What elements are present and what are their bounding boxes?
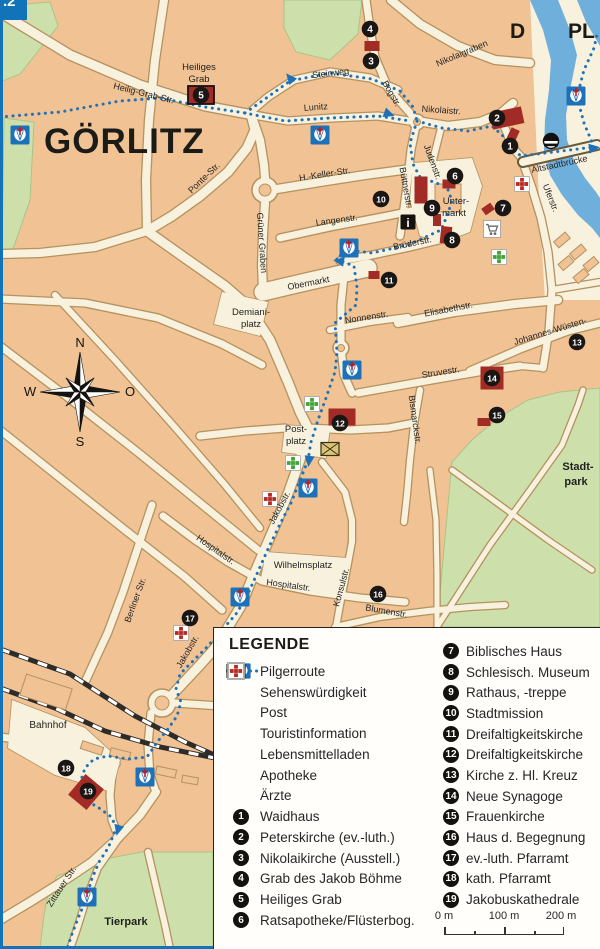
legend-label: Apotheke (260, 768, 317, 783)
marker-number: 2 (494, 113, 500, 124)
legend-label: Lebensmittelladen (260, 747, 370, 762)
marker-number: 13 (572, 337, 582, 347)
legend-label: Rathaus, -treppe (466, 685, 567, 700)
compass-label: N (75, 335, 84, 350)
marker-10: 10 (373, 191, 390, 208)
scale-label: 200 m (546, 910, 577, 922)
marker-14: 14 (484, 370, 501, 387)
marker-number: 7 (500, 203, 506, 214)
legend-label: Kirche z. Hl. Kreuz (466, 768, 578, 783)
number-badge: 4 (226, 871, 256, 887)
number-badge: 15 (443, 809, 459, 825)
legend-numbered-row: 12Dreifaltigkeitskirche (440, 744, 590, 765)
post-office-icon (321, 443, 339, 456)
number-badge: 14 (443, 788, 459, 804)
map-border-left (0, 0, 3, 949)
pilgrim-shell-icon (136, 768, 155, 787)
place-label: Demiani- (232, 307, 270, 318)
legend-symbol-row: iTouristinformation (226, 723, 415, 744)
legend-numbered-row: 7Biblisches Haus (440, 641, 590, 662)
marker-8: 8 (444, 232, 461, 249)
legend-label: Pilgerroute (260, 664, 325, 679)
tourist-info-icon: i (401, 215, 416, 230)
number-badge: 18 (443, 871, 459, 887)
marker-3: 3 (363, 53, 380, 70)
number-badge: 3 (226, 850, 256, 866)
compass-label: W (24, 384, 37, 399)
marker-17: 17 (182, 610, 199, 627)
legend-label: Touristinformation (260, 726, 367, 741)
place-label: Tierpark (104, 916, 148, 928)
number-badge: 13 (443, 767, 459, 783)
doctors-icon (515, 177, 530, 192)
roundabout-island (155, 696, 169, 710)
legend-label: Peterskirche (ev.-luth.) (260, 830, 395, 845)
country-label-poland: PL (568, 20, 595, 44)
compass-label: O (125, 384, 135, 399)
legend-numbered-row: 15Frauenkirche (440, 807, 590, 828)
legend-numbered-row: 17ev.-luth. Pfarramt (440, 848, 590, 869)
legend-symbol-row: Post (226, 703, 415, 724)
legend-symbol-row: Pilgerroute (226, 661, 415, 682)
street-label: Lunitz (303, 101, 328, 113)
scale-bar: 0 m100 m200 m (214, 910, 600, 946)
legend-symbol-row: Ärzte (226, 786, 415, 807)
marker-number: 15 (492, 410, 502, 420)
pilgrim-shell-icon (231, 588, 250, 607)
marker-11: 11 (381, 272, 398, 289)
marker-number: 9 (429, 203, 435, 214)
marker-19: 19 (80, 783, 97, 800)
legend-symbol-row: Lebensmittelladen (226, 744, 415, 765)
legend-panel: LEGENDE PilgerrouteSehenswürdigkeitPosti… (213, 627, 600, 949)
map-title: GÖRLITZ (44, 122, 205, 162)
legend-label: Grab des Jakob Böhme (260, 871, 402, 886)
pilgrim-shell-icon (340, 239, 359, 258)
place-label: Bahnhof (29, 720, 66, 731)
place-label: platz (241, 319, 261, 330)
number-badge: 19 (443, 892, 459, 908)
legend-label: Post (260, 705, 287, 720)
marker-number: 4 (367, 24, 373, 35)
marker-2: 2 (489, 110, 506, 127)
legend-numbered-row: 3Nikolaikirche (Ausstell.) (226, 848, 415, 869)
place-label: markt (442, 208, 466, 219)
legend-symbol-row: Apotheke (226, 765, 415, 786)
place-label: platz (286, 436, 306, 447)
number-badge: 2 (226, 829, 256, 845)
legend-numbered-row: 19Jakobuskathedrale (440, 889, 590, 910)
legend-left-column: PilgerrouteSehenswürdigkeitPostiTouristi… (226, 661, 415, 931)
sight-building (365, 41, 380, 51)
roundabout-island (338, 345, 345, 352)
marker-number: 5 (198, 90, 204, 101)
roundabout-island (259, 184, 271, 196)
legend-numbered-row: 2Peterskirche (ev.-luth.) (226, 827, 415, 848)
marker-4: 4 (362, 21, 379, 38)
marker-7: 7 (495, 200, 512, 217)
legend-numbered-row: 11Dreifaltigkeitskirche (440, 724, 590, 745)
legend-right-column: 7Biblisches Haus8Schlesisch. Museum9Rath… (440, 641, 590, 910)
marker-5: 5 (193, 87, 210, 104)
marker-number: 14 (487, 373, 497, 383)
legend-numbered-row: 14Neue Synagoge (440, 786, 590, 807)
place-label: Wilhelmsplatz (274, 560, 333, 571)
marker-number: 11 (384, 275, 393, 285)
legend-label: Dreifaltigkeitskirche (466, 747, 583, 762)
legend-numbered-row: 13Kirche z. Hl. Kreuz (440, 765, 590, 786)
sight-building (369, 271, 380, 279)
legend-numbered-row: 4Grab des Jakob Böhme (226, 869, 415, 890)
legend-title: LEGENDE (229, 636, 310, 654)
place-label: Stadt- (562, 461, 594, 473)
map-screenshot: iHeilig-Grab-Str.SteinwegLunitzBogstr.Ni… (0, 0, 600, 949)
number-badge: 8 (443, 664, 459, 680)
legend-label: Neue Synagoge (466, 789, 563, 804)
place-label: Post- (285, 424, 307, 435)
legend-numbered-row: 16Haus d. Begegnung (440, 827, 590, 848)
grid-corner-text: .2 (3, 0, 27, 10)
scale-label: 0 m (435, 910, 453, 922)
shopping-cart-icon (484, 221, 501, 238)
compass-label: S (76, 434, 85, 449)
place-label: park (564, 476, 588, 488)
pilgrim-shell-icon (311, 126, 330, 145)
legend-label: Nikolaikirche (Ausstell.) (260, 851, 400, 866)
legend-label: Ärzte (260, 788, 292, 803)
marker-18: 18 (58, 760, 75, 777)
pharmacy-icon (492, 250, 507, 265)
number-badge: 10 (443, 705, 459, 721)
marker-number: 8 (449, 235, 455, 246)
legend-label: Waidhaus (260, 809, 320, 824)
legend-label: Heiliges Grab (260, 892, 342, 907)
marker-number: 12 (335, 418, 345, 428)
place-label: Grab (188, 74, 209, 85)
marker-number: 17 (185, 613, 195, 623)
legend-label: kath. Pfarramt (466, 871, 551, 886)
marker-number: 6 (452, 171, 458, 182)
number-badge: 12 (443, 747, 459, 763)
legend-label: Jakobuskathedrale (466, 892, 579, 907)
legend-numbered-row: 1Waidhaus (226, 806, 415, 827)
legend-numbered-row: 10Stadtmission (440, 703, 590, 724)
legend-label: Sehenswürdigkeit (260, 685, 367, 700)
marker-number: 19 (83, 786, 93, 796)
country-label-germany: D (510, 20, 525, 44)
pilgrim-shell-icon (78, 888, 97, 907)
aerzte-legend-icon (226, 661, 246, 681)
legend-numbered-row: 8Schlesisch. Museum (440, 662, 590, 683)
svg-text:i: i (406, 216, 409, 230)
number-badge: 16 (443, 830, 459, 846)
marker-number: 10 (376, 194, 386, 204)
marker-number: 3 (368, 56, 374, 67)
legend-numbered-row: 5Heiliges Grab (226, 889, 415, 910)
place-label: Heiliges (182, 62, 216, 73)
number-badge: 1 (226, 809, 256, 825)
sight-building (478, 418, 491, 426)
number-badge: 9 (443, 685, 459, 701)
scale-label: 100 m (489, 910, 520, 922)
marker-number: 1 (507, 141, 513, 152)
grid-corner-tag: .2 (0, 0, 27, 20)
legend-label: Biblisches Haus (466, 644, 562, 659)
legend-symbol-row: Sehenswürdigkeit (226, 682, 415, 703)
legend-numbered-row: 9Rathaus, -treppe (440, 682, 590, 703)
marker-15: 15 (489, 407, 506, 424)
legend-label: Stadtmission (466, 706, 543, 721)
marker-12: 12 (332, 415, 349, 432)
pilgrim-shell-icon (343, 361, 362, 380)
legend-label: Haus d. Begegnung (466, 830, 585, 845)
road (520, 366, 543, 368)
marker-number: 16 (373, 589, 383, 599)
bridge-gate-icon (544, 134, 559, 149)
number-badge: 5 (226, 892, 256, 908)
marker-16: 16 (370, 586, 387, 603)
legend-label: Frauenkirche (466, 809, 545, 824)
number-badge: 11 (443, 726, 459, 742)
pharmacy-icon (305, 397, 320, 412)
marker-6: 6 (447, 168, 464, 185)
place-label: Unter- (443, 196, 469, 207)
pilgrim-shell-icon (299, 479, 318, 498)
marker-number: 18 (61, 763, 71, 773)
legend-label: ev.-luth. Pfarramt (466, 851, 569, 866)
legend-numbered-row: 18kath. Pfarramt (440, 869, 590, 890)
number-badge: 17 (443, 850, 459, 866)
sight-building (415, 177, 428, 204)
pilgrim-shell-icon (567, 87, 586, 106)
scale-ruler (444, 927, 564, 935)
legend-label: Dreifaltigkeitskirche (466, 727, 583, 742)
marker-1: 1 (502, 138, 519, 155)
doctors-icon (174, 626, 189, 641)
pilgrim-shell-icon (11, 126, 30, 145)
number-badge: 7 (443, 643, 459, 659)
marker-13: 13 (569, 334, 586, 351)
legend-label: Schlesisch. Museum (466, 665, 590, 680)
marker-9: 9 (424, 200, 441, 217)
pharmacy-icon (286, 456, 301, 471)
